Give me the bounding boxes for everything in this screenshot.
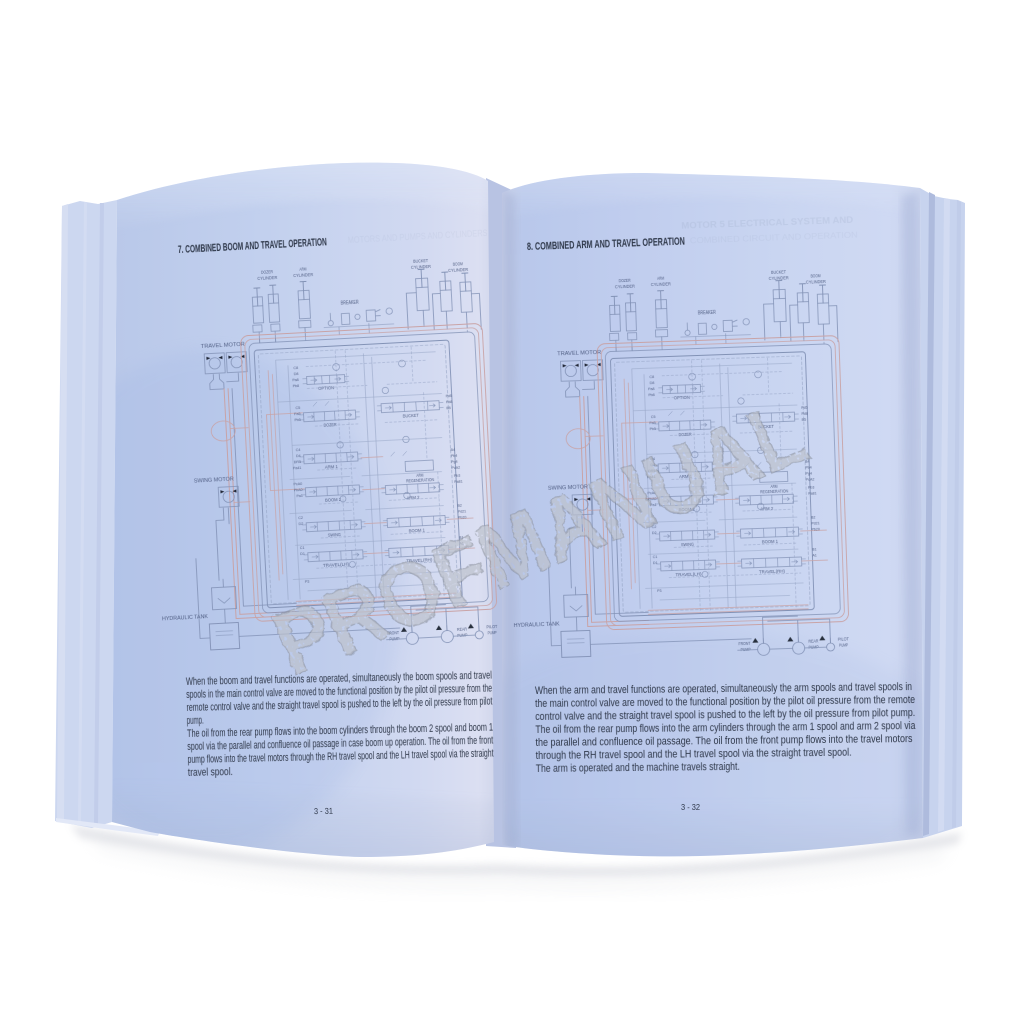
svg-text:D2: D2 xyxy=(299,522,304,526)
svg-text:FRONT: FRONT xyxy=(738,641,750,647)
svg-text:Pa81: Pa81 xyxy=(808,491,817,495)
svg-text:Pd5: Pd5 xyxy=(801,406,808,410)
svg-text:C8: C8 xyxy=(649,375,654,379)
svg-text:PILOT: PILOT xyxy=(838,636,849,641)
svg-text:OPTION: OPTION xyxy=(674,395,690,401)
svg-text:C8: C8 xyxy=(293,366,298,370)
svg-text:D1: D1 xyxy=(300,552,305,556)
svg-text:B2: B2 xyxy=(457,504,462,508)
svg-text:Pd5: Pd5 xyxy=(446,394,453,398)
svg-text:Pb4: Pb4 xyxy=(451,454,458,458)
svg-text:Pg4: Pg4 xyxy=(451,460,458,464)
svg-text:P3: P3 xyxy=(657,589,662,593)
svg-text:BOOM: BOOM xyxy=(453,261,463,268)
svg-text:3 - 31: 3 - 31 xyxy=(314,806,333,816)
svg-text:BUCKET: BUCKET xyxy=(403,413,420,419)
svg-text:C5: C5 xyxy=(651,415,656,419)
svg-text:Pa8: Pa8 xyxy=(292,378,299,382)
svg-text:DOZER: DOZER xyxy=(619,278,632,284)
svg-text:pump.: pump. xyxy=(187,715,204,727)
svg-text:BOOM 2: BOOM 2 xyxy=(325,497,342,503)
svg-text:C5: C5 xyxy=(295,406,300,410)
svg-text:Pb3: Pb3 xyxy=(808,485,815,489)
svg-text:BREAKER: BREAKER xyxy=(698,310,716,317)
svg-text:B5: B5 xyxy=(446,406,451,410)
svg-text:CYLINDER: CYLINDER xyxy=(651,281,672,288)
svg-text:Pa8: Pa8 xyxy=(648,387,655,391)
svg-text:Pb8: Pb8 xyxy=(293,384,300,388)
svg-text:D8: D8 xyxy=(294,372,299,376)
svg-text:B4: B4 xyxy=(450,448,455,452)
svg-text:BOOM: BOOM xyxy=(811,273,821,279)
svg-text:CYLINDER: CYLINDER xyxy=(257,275,278,282)
svg-text:PcA0: PcA0 xyxy=(293,482,302,486)
svg-text:PUMP: PUMP xyxy=(488,630,497,635)
svg-text:B2: B2 xyxy=(811,515,816,519)
svg-text:PILOT: PILOT xyxy=(486,624,498,630)
svg-text:3 - 32: 3 - 32 xyxy=(681,802,700,812)
svg-text:Pd8: Pd8 xyxy=(801,412,808,416)
svg-text:C4: C4 xyxy=(296,448,301,452)
svg-text:Pa81: Pa81 xyxy=(454,480,463,484)
svg-text:BOOM 1: BOOM 1 xyxy=(762,539,779,545)
svg-text:Pd8: Pd8 xyxy=(446,400,453,404)
svg-text:C2: C2 xyxy=(298,516,303,520)
svg-text:The arm is operated and the ma: The arm is operated and the machine trav… xyxy=(536,761,740,775)
svg-text:Pa5: Pa5 xyxy=(294,412,301,416)
svg-text:D4: D4 xyxy=(296,454,301,458)
svg-text:DOZER: DOZER xyxy=(261,269,274,276)
svg-text:C1: C1 xyxy=(653,555,658,559)
svg-text:Pb8: Pb8 xyxy=(648,393,655,397)
svg-text:REAR: REAR xyxy=(808,638,819,644)
svg-text:ARM: ARM xyxy=(299,266,306,272)
svg-text:Pb3: Pb3 xyxy=(454,474,461,478)
svg-text:Pb5: Pb5 xyxy=(649,427,656,431)
svg-text:PUMP: PUMP xyxy=(839,642,848,647)
svg-text:ARM: ARM xyxy=(657,276,664,282)
svg-text:Pa1: Pa1 xyxy=(296,494,303,498)
svg-text:DR5: DR5 xyxy=(294,460,301,464)
svg-text:BREAKER: BREAKER xyxy=(341,300,360,307)
svg-text:ARM 1: ARM 1 xyxy=(325,464,339,470)
svg-text:C1: C1 xyxy=(300,546,305,550)
svg-text:PbA0: PbA0 xyxy=(294,488,303,492)
svg-text:DOZER: DOZER xyxy=(323,422,336,428)
svg-text:B5: B5 xyxy=(802,418,807,422)
svg-text:CYLINDER: CYLINDER xyxy=(615,284,636,291)
svg-text:travel spool.: travel spool. xyxy=(188,766,233,779)
svg-text:PcA2: PcA2 xyxy=(451,466,460,470)
svg-text:Pd21: Pd21 xyxy=(811,521,820,525)
svg-text:BUCKET: BUCKET xyxy=(413,258,428,265)
svg-text:BUCKET: BUCKET xyxy=(771,269,786,276)
svg-text:D1: D1 xyxy=(653,561,658,565)
svg-text:B1: B1 xyxy=(812,547,817,551)
svg-text:A1: A1 xyxy=(812,553,817,557)
svg-text:Pd21: Pd21 xyxy=(458,509,467,513)
svg-text:SWING: SWING xyxy=(328,532,341,538)
svg-text:Pb20: Pb20 xyxy=(811,527,820,531)
svg-text:SWING: SWING xyxy=(681,542,694,547)
svg-text:Pb5: Pb5 xyxy=(294,418,301,422)
svg-text:OPTION: OPTION xyxy=(318,385,334,391)
svg-text:CYLINDER: CYLINDER xyxy=(293,272,314,279)
svg-text:Pa5: Pa5 xyxy=(649,421,656,425)
svg-text:D8: D8 xyxy=(650,381,655,385)
svg-text:Pa41: Pa41 xyxy=(293,466,302,470)
